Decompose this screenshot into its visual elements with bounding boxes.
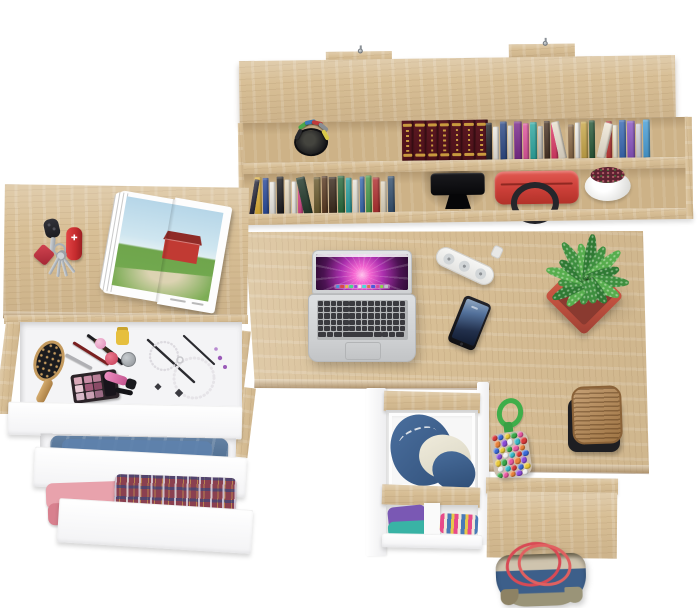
key: [382, 332, 388, 337]
key: [375, 313, 380, 318]
power-socket: [473, 266, 488, 281]
key: [387, 326, 392, 331]
eyeshadow-shades: [74, 374, 104, 401]
laptop-keyboard: [317, 300, 408, 340]
gold-ornament: [419, 130, 422, 152]
key: [324, 326, 329, 331]
eyeshadow-shade: [76, 393, 85, 401]
key: [396, 332, 404, 337]
eyeshadow-shade: [84, 383, 93, 391]
key: [343, 301, 348, 306]
encyclopedia-volume: [426, 120, 438, 160]
magazine: [96, 187, 235, 316]
dock-icon: [345, 285, 348, 288]
key: [343, 313, 348, 318]
key: [381, 326, 386, 331]
key: [375, 301, 380, 306]
book-spine: [292, 181, 297, 214]
gold-band: [452, 153, 461, 156]
key: [331, 307, 336, 312]
book-spine: [508, 125, 513, 159]
spacebar: [343, 332, 373, 337]
key: [343, 320, 348, 325]
book-spine: [314, 177, 322, 214]
encyclopedia-volume: [414, 121, 426, 161]
gold-band: [465, 153, 474, 156]
encyclopedia-volume: [463, 120, 475, 160]
cabinet-side-rail: [0, 322, 21, 414]
key: [400, 320, 405, 325]
key: [337, 313, 342, 318]
book-row-lower: [249, 173, 416, 215]
key: [337, 320, 342, 325]
nail-polish-yellow: [116, 330, 129, 345]
woven-stool-top: [571, 385, 623, 445]
book-row-upper: [486, 117, 665, 159]
book-spine: [613, 125, 618, 158]
bead: [223, 365, 227, 369]
key: [331, 301, 336, 306]
eyeshadow-shade: [75, 385, 84, 393]
laptop-deck: [308, 294, 416, 362]
gold-band: [477, 153, 486, 156]
key: [356, 313, 361, 318]
wall-hutch: [237, 39, 694, 231]
keyboard-row: [318, 301, 407, 306]
key: [318, 307, 323, 312]
key: [389, 332, 395, 337]
key: [337, 307, 342, 312]
gold-band: [464, 123, 473, 126]
key: [327, 332, 333, 337]
pompom-bead-pouch: [489, 430, 533, 480]
book-spine: [486, 123, 493, 160]
hutch-side-right: [685, 117, 693, 219]
home-button: [459, 342, 463, 346]
gold-ornament: [455, 129, 458, 151]
bead: [502, 471, 509, 478]
eyeshadow-shade: [95, 390, 104, 398]
key: [381, 313, 386, 318]
encyclopedia-volume: [451, 120, 463, 160]
keyboard-row: [318, 313, 407, 318]
book-spine: [329, 177, 338, 214]
trackpad: [345, 342, 381, 360]
key: [400, 313, 405, 318]
book-spine: [589, 120, 596, 158]
key: [387, 313, 392, 318]
gold-band: [477, 123, 486, 126]
key: [324, 307, 329, 312]
book-spine: [270, 182, 276, 215]
dock-icon: [367, 285, 370, 288]
dock-icon: [363, 285, 366, 288]
pedestal-bottom-front: [382, 533, 482, 549]
key: [356, 326, 361, 331]
charm: [154, 383, 161, 390]
pedestal-side-panel: [366, 388, 386, 556]
pen-cup: [294, 128, 328, 156]
key: [393, 326, 398, 331]
book-spine: [581, 121, 589, 158]
book-spine: [277, 177, 285, 215]
key: [337, 301, 342, 306]
key: [349, 313, 354, 318]
book-spine: [575, 122, 581, 158]
dock-icon: [354, 285, 357, 288]
key: [356, 307, 361, 312]
key: [387, 307, 392, 312]
key: [324, 313, 329, 318]
dock-icon: [341, 285, 344, 288]
power-socket: [458, 259, 473, 274]
key: [368, 320, 373, 325]
key: [318, 332, 326, 337]
key: [349, 301, 354, 306]
nail-polish-pink: [95, 338, 106, 349]
bead: [522, 469, 529, 476]
laptop-screen: [316, 254, 408, 290]
eyeshadow-shade: [83, 375, 92, 383]
dock-icon: [376, 285, 379, 288]
key: [368, 307, 373, 312]
keyboard-row: [318, 307, 407, 312]
hutch-shelf-upper: [242, 117, 689, 163]
key: [393, 301, 398, 306]
book-spine: [360, 176, 366, 213]
gold-band: [403, 154, 412, 157]
key: [318, 326, 323, 331]
key: [337, 326, 342, 331]
key: [318, 320, 323, 325]
key: [374, 332, 382, 337]
bead: [520, 437, 527, 444]
book-spine: [338, 176, 346, 214]
gold-ornament: [406, 130, 409, 152]
book-spine: [500, 121, 508, 159]
dock-icon: [380, 285, 383, 288]
key: [349, 326, 354, 331]
book-spine: [493, 127, 499, 160]
gold-band: [427, 123, 436, 126]
book-spine: [346, 178, 353, 214]
key: [400, 301, 405, 306]
pocket-knife: ✚: [66, 227, 82, 260]
book-spine: [388, 176, 396, 213]
key: [343, 326, 348, 331]
encyclopedia-set: [402, 120, 489, 161]
key: [362, 301, 367, 306]
book-spine: [636, 124, 642, 158]
key: [368, 313, 373, 318]
book-spine: [263, 178, 270, 215]
key: [349, 307, 354, 312]
gold-ornament: [468, 129, 471, 151]
key: [400, 326, 405, 331]
encyclopedia-volume: [439, 120, 451, 160]
book-spine: [619, 120, 627, 158]
dock-icon: [336, 285, 339, 288]
key: [331, 326, 336, 331]
dock-icon: [358, 285, 361, 288]
key: [387, 320, 392, 325]
key: [331, 313, 336, 318]
key: [334, 332, 342, 337]
hutch-top-panel: [239, 55, 676, 123]
keyboard-row: [318, 332, 407, 337]
key: [400, 307, 405, 312]
bead: [524, 462, 531, 469]
knife-cross-icon: ✚: [71, 233, 78, 242]
key: [318, 313, 323, 318]
dock-icon: [349, 285, 352, 288]
book-spine: [373, 177, 381, 213]
key: [387, 301, 392, 306]
key: [381, 307, 386, 312]
key: [393, 320, 398, 325]
bead: [218, 356, 222, 360]
eyeshadow-shade: [85, 391, 94, 399]
gold-band: [452, 123, 461, 126]
cosmetic-jar: [121, 352, 136, 367]
keyboard-row: [318, 320, 407, 325]
key: [393, 313, 398, 318]
side-desk: ✚: [3, 184, 249, 321]
pen: [321, 129, 330, 141]
key: [362, 307, 367, 312]
dock: [334, 284, 390, 289]
key: [362, 313, 367, 318]
key: [356, 320, 361, 325]
book-spine: [530, 122, 538, 159]
book-spine: [538, 126, 543, 159]
key: [375, 326, 380, 331]
dock-icon: [384, 285, 387, 288]
canvas: { "scene": { "description": "Top-down pr…: [0, 0, 700, 608]
gold-band: [403, 124, 412, 127]
striped-clothing: [440, 513, 479, 535]
eyeshadow-shade: [94, 382, 103, 390]
menu-bar: [316, 254, 408, 257]
hutch-shelf-lower: [243, 168, 692, 214]
book-spine: [366, 175, 373, 213]
book-spine: [544, 121, 551, 159]
camera: [431, 173, 485, 196]
key: [324, 320, 329, 325]
key: [362, 320, 367, 325]
gold-band: [415, 124, 424, 127]
key: [331, 320, 336, 325]
book-spine: [627, 121, 636, 158]
gold-band: [440, 153, 449, 156]
key: [349, 320, 354, 325]
key: [368, 301, 373, 306]
pen: [294, 129, 303, 141]
book-spine: [514, 121, 523, 159]
dock-icon: [371, 285, 374, 288]
eyeshadow-shade: [92, 374, 101, 382]
book-spine: [523, 123, 530, 159]
key: [343, 307, 348, 312]
laptop: [308, 250, 416, 362]
book-spine: [285, 179, 291, 214]
key: [375, 320, 380, 325]
gold-ornament: [480, 129, 483, 151]
power-socket: [442, 251, 457, 266]
book-spine: [643, 119, 651, 157]
gold-ornament: [431, 129, 434, 151]
key: [324, 301, 329, 306]
laptop-lid: [312, 250, 412, 294]
book-spine: [322, 176, 329, 214]
bead: [214, 347, 218, 351]
screw-icon: [543, 41, 548, 46]
key: [375, 307, 380, 312]
key: [393, 307, 398, 312]
keyboard-row: [318, 326, 407, 331]
gold-ornament: [443, 129, 446, 151]
nail-polish-red: [105, 352, 118, 365]
key: [368, 326, 373, 331]
eyeshadow-shade: [74, 377, 83, 385]
book-spine: [568, 124, 574, 158]
charm: [175, 389, 183, 397]
key: [381, 320, 386, 325]
gold-band: [440, 123, 449, 126]
screw-icon: [358, 48, 363, 53]
book-spine: [353, 179, 359, 213]
gold-band: [428, 153, 437, 156]
key: [381, 301, 386, 306]
book-spine: [381, 181, 387, 213]
key: [318, 301, 323, 306]
gold-band: [416, 154, 425, 157]
key: [356, 301, 361, 306]
encyclopedia-volume: [402, 121, 414, 161]
key: [362, 326, 367, 331]
necklace-jewelry: [136, 330, 234, 408]
tote-bag: [495, 546, 587, 607]
